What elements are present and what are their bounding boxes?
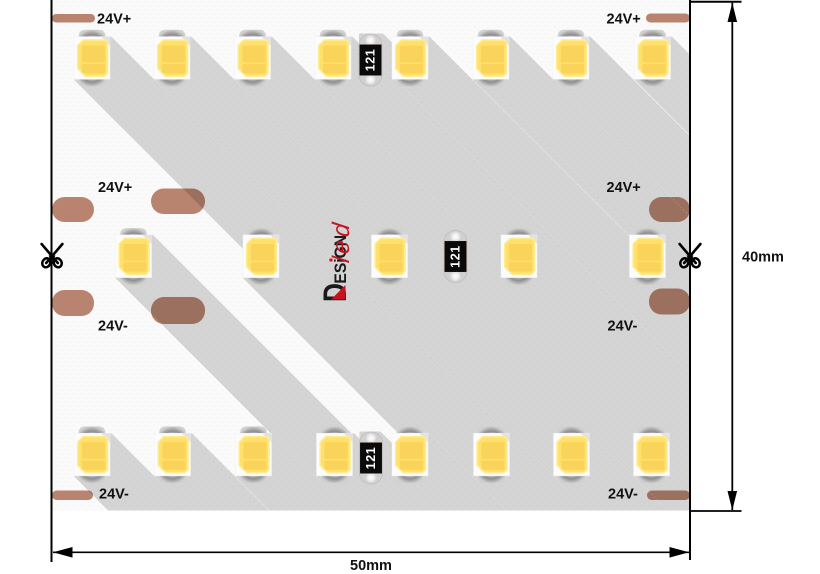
svg-text:24V+: 24V+ — [607, 180, 641, 196]
svg-text:24V-: 24V- — [608, 487, 638, 503]
svg-text:24V+: 24V+ — [97, 12, 131, 28]
svg-text:50mm: 50mm — [350, 558, 392, 574]
svg-text:24V+: 24V+ — [98, 180, 132, 196]
svg-text:24V+: 24V+ — [607, 12, 641, 28]
svg-text:24V-: 24V- — [98, 319, 128, 335]
svg-text:40mm: 40mm — [742, 250, 784, 266]
svg-text:24V-: 24V- — [608, 319, 638, 335]
svg-text:24V-: 24V- — [99, 487, 129, 503]
svg-text:led: led — [328, 218, 355, 264]
